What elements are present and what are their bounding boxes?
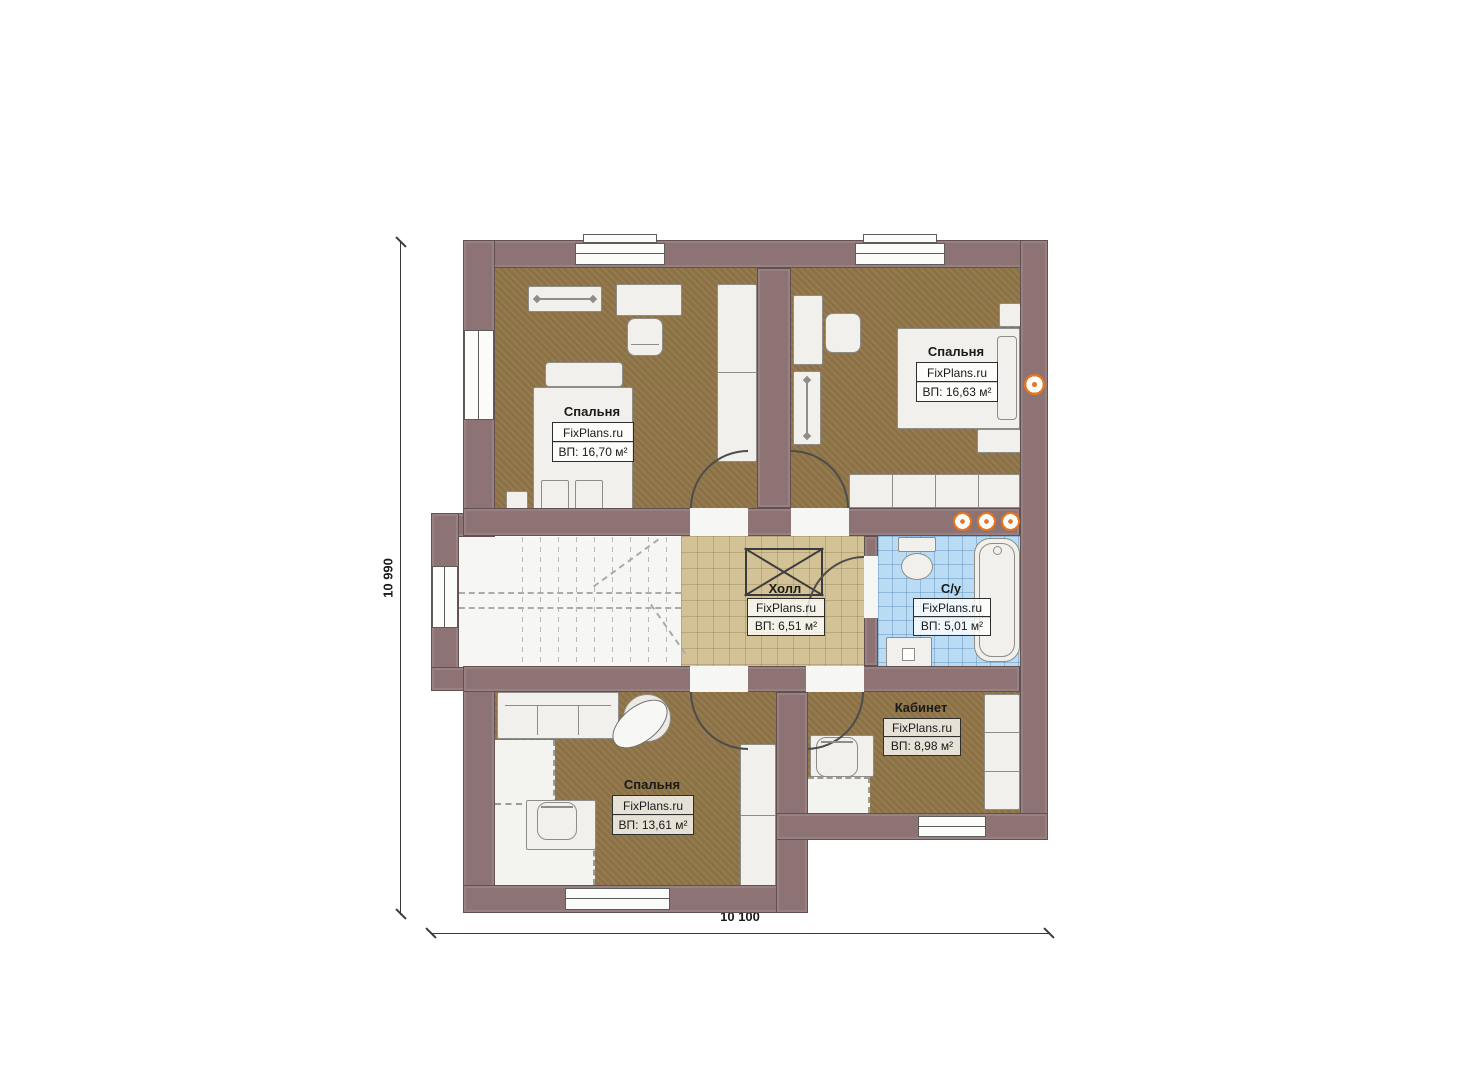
wall-partition-bedrooms [757, 268, 791, 508]
floor-plan: Спальня FixPlans.ru ВП: 16,70 м² Спальня… [0, 0, 1474, 1080]
wardrobe-divider [984, 771, 1020, 772]
stair-treads [505, 537, 681, 666]
door-opening-bathroom [864, 556, 878, 618]
low-ceiling-zone [808, 777, 870, 813]
window-frame-line [575, 253, 665, 254]
wall-vent-marker [1001, 512, 1020, 531]
window-stairwell [432, 566, 458, 628]
window-bottom-bedroom [565, 888, 670, 910]
window-frame-line [565, 898, 670, 899]
nightstand [977, 429, 1021, 453]
dimension-tick [395, 236, 406, 247]
window-frame-line [478, 330, 479, 420]
chair [825, 313, 861, 353]
wardrobe [717, 284, 757, 462]
dimension-line-vertical [400, 242, 401, 915]
wardrobe-divider [984, 732, 1020, 733]
wall-exterior-top [463, 240, 1048, 268]
wall-vent-marker [977, 512, 996, 531]
room-title-hall: Холл [769, 581, 802, 596]
sofa-back-line [505, 705, 611, 706]
room-brand-bedroom-tl: FixPlans.ru [552, 422, 634, 443]
room-brand-hall: FixPlans.ru [747, 598, 825, 618]
room-area-bedroom-tl: ВП: 16,70 м² [552, 441, 634, 462]
room-brand-bedroom-bl: FixPlans.ru [612, 795, 694, 816]
wardrobe [984, 694, 1020, 810]
room-title-bedroom-tl: Спальня [564, 404, 620, 419]
window-top-right [855, 243, 945, 265]
drying-rack-bar [536, 298, 594, 300]
room-area-study: ВП: 8,98 м² [883, 736, 961, 756]
door-opening-bedroom-tl [690, 508, 748, 536]
wall-exterior-left-bottom [463, 667, 495, 913]
desk [616, 284, 682, 316]
bed-pillow [997, 336, 1017, 420]
stair-landing-line [459, 607, 681, 609]
room-brand-study: FixPlans.ru [883, 718, 961, 738]
chair-seat-line [631, 344, 659, 345]
dimension-label-vertical: 10 990 [381, 558, 396, 598]
toilet-tank [898, 537, 936, 552]
toilet-bowl [901, 553, 933, 580]
wardrobe-divider [978, 474, 979, 508]
room-title-study: Кабинет [895, 700, 948, 715]
room-title-bedroom-tr: Спальня [928, 344, 984, 359]
window-left-bedroom [464, 330, 494, 420]
wardrobe-divider [935, 474, 936, 508]
window-top-left [575, 243, 665, 265]
bathtub-drain [993, 546, 1002, 555]
wall-vent-marker [1024, 374, 1045, 395]
room-brand-bathroom: FixPlans.ru [913, 598, 991, 618]
sofa-seat-divider [537, 705, 538, 735]
washing-machine-door [902, 648, 915, 661]
wardrobe-divider [717, 372, 757, 373]
room-area-hall: ВП: 6,51 м² [747, 616, 825, 636]
door-opening-bedroom-bl [690, 666, 748, 692]
room-area-bathroom: ВП: 5,01 м² [913, 616, 991, 636]
window-frame-line [855, 253, 945, 254]
sofa-seat-divider [578, 705, 579, 735]
bed-foot-drawer [541, 480, 569, 510]
desk [793, 295, 823, 365]
office-chair-back [821, 741, 853, 743]
nightstand [999, 303, 1021, 327]
chair [627, 318, 663, 356]
door-opening-study [806, 666, 864, 692]
door-opening-bedroom-tr [791, 508, 849, 536]
wall-exterior-step [776, 692, 808, 913]
office-chair-back [541, 806, 573, 808]
window-frame-line [444, 566, 445, 628]
bed-headboard-cushion [545, 362, 623, 387]
room-area-bedroom-bl: ВП: 13,61 м² [612, 814, 694, 835]
sofa [497, 692, 619, 739]
wardrobe-divider [740, 815, 776, 816]
dimension-line-horizontal [431, 933, 1049, 934]
drying-rack-bar [806, 379, 808, 437]
room-brand-bedroom-tr: FixPlans.ru [916, 362, 998, 383]
wall-exterior-right [1020, 240, 1048, 840]
room-area-bedroom-tr: ВП: 16,63 м² [916, 381, 998, 402]
window-sill [583, 234, 657, 243]
room-title-bathroom: С/у [941, 581, 961, 596]
dimension-tick [395, 908, 406, 919]
wardrobe-divider [892, 474, 893, 508]
wall-vent-marker [953, 512, 972, 531]
stair-landing-line [459, 592, 681, 594]
window-sill [863, 234, 937, 243]
window-frame-line [918, 826, 986, 827]
bed-foot-drawer [575, 480, 603, 510]
room-title-bedroom-bl: Спальня [624, 777, 680, 792]
wall-exterior-bottom-study [776, 813, 1048, 840]
